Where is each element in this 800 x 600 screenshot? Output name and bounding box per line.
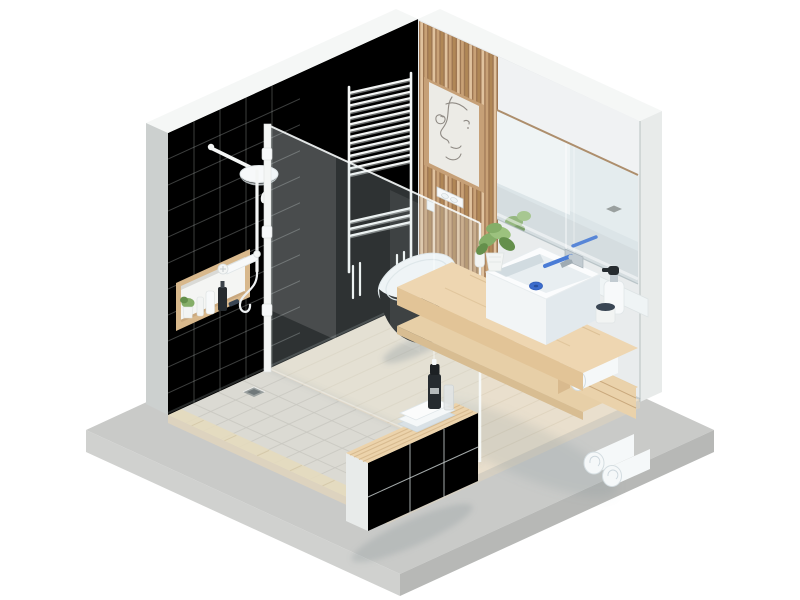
dispenser-spout xyxy=(602,268,610,272)
spray-bottle-label xyxy=(430,388,439,394)
cosmetic-tube xyxy=(444,385,454,410)
sink-drain-center xyxy=(534,285,538,288)
bench-end-left xyxy=(346,453,368,531)
niche-bottle xyxy=(206,291,215,314)
cosmetic-jar xyxy=(596,303,615,323)
right-wall-pillar xyxy=(640,111,662,402)
glass-sheen-1 xyxy=(272,128,336,340)
floor-roll-end xyxy=(584,452,604,474)
glass-wall-profile xyxy=(264,124,271,372)
jar-lid xyxy=(596,303,615,311)
bathroom-render-canvas xyxy=(0,0,800,600)
left-wall-end-cap xyxy=(146,123,168,415)
isometric-bathroom-scene xyxy=(0,0,800,600)
dispenser-neck xyxy=(610,274,618,282)
niche-plant-leaf xyxy=(180,297,188,304)
niche-black-bottle xyxy=(218,287,227,311)
niche-tube xyxy=(197,297,204,316)
niche-plant-pot xyxy=(183,307,193,318)
floor-roll-end-2 xyxy=(603,466,622,487)
spray-bottle-nozzle xyxy=(432,359,437,365)
faucet-joint xyxy=(568,254,573,259)
niche-black-bottle-pump xyxy=(221,281,225,288)
mixer-knob xyxy=(254,251,261,258)
spray-bottle-cap xyxy=(430,364,440,375)
